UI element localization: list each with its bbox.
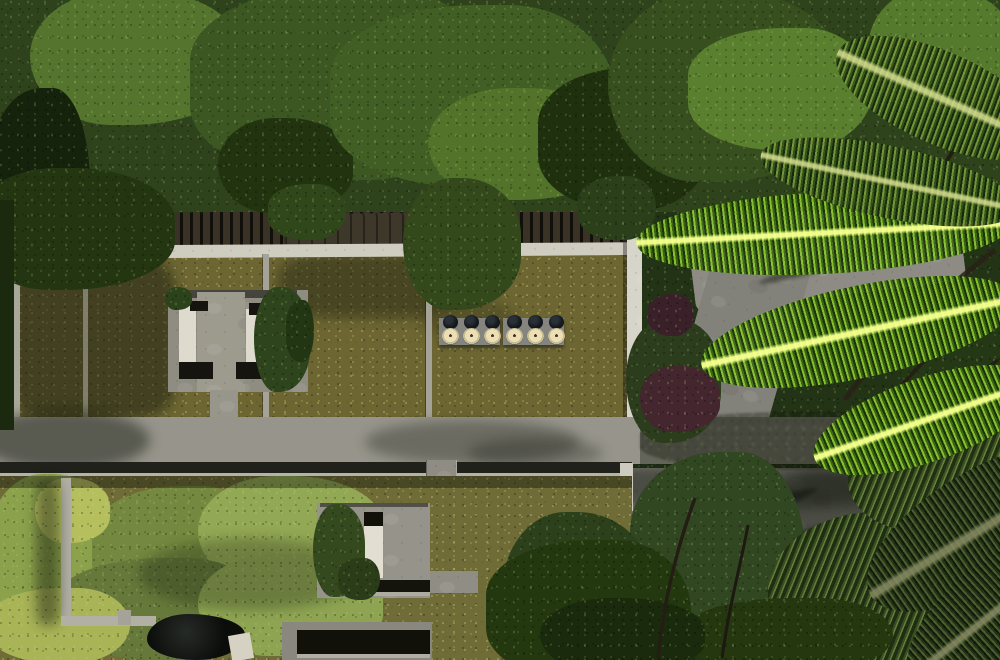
overhanging-branch <box>268 184 346 240</box>
skylight-panel <box>439 318 500 345</box>
skylight-fixture <box>442 319 459 345</box>
skylight-disc-icon <box>506 328 523 345</box>
courtyard-dark-slot <box>190 301 208 311</box>
aerial-photo-scene <box>0 0 1000 660</box>
bottom-lip <box>297 654 430 658</box>
skylight-disc-icon <box>548 328 565 345</box>
walkway-cast-shadow <box>0 476 632 488</box>
courtyard-path-stub <box>210 390 238 420</box>
overhanging-branch <box>0 168 175 290</box>
overhanging-branch <box>403 178 521 310</box>
skylight-dome-icon <box>507 315 522 329</box>
lower-roof-edge-beam <box>61 478 71 625</box>
courtyard-shrub <box>286 300 314 362</box>
courtyard-shrub <box>338 558 380 600</box>
skylight-dome-icon <box>528 315 543 329</box>
courtyard-path-right <box>430 571 478 593</box>
white-wall-corner <box>228 632 254 660</box>
skylight-disc-icon <box>442 328 459 345</box>
courtyard-shrub <box>165 287 192 310</box>
skylight-disc-icon <box>484 328 501 345</box>
skylight-fixture <box>548 319 565 345</box>
concrete-post <box>118 610 131 625</box>
canopy-left-strip <box>0 200 14 430</box>
thin-palm-trunk <box>722 525 748 658</box>
white-planter-left <box>179 306 196 364</box>
bottom-dark-slot <box>297 630 430 655</box>
courtyard-dark-slot <box>364 512 383 526</box>
skylight-dome-icon <box>464 315 479 329</box>
skylight-panel <box>503 318 564 345</box>
skylight-fixture <box>484 319 501 345</box>
lower-roof-edge-beam <box>61 616 156 626</box>
skylight-dome-icon <box>549 315 564 329</box>
beam-side-shadow <box>36 480 60 625</box>
skylight-fixture <box>463 319 480 345</box>
skylight-dome-icon <box>485 315 500 329</box>
courtyard-dark-slot <box>179 362 213 379</box>
skylight-fixture <box>506 319 523 345</box>
skylight-dome-icon <box>443 315 458 329</box>
skylight-fixture <box>527 319 544 345</box>
thin-palm-trunk <box>658 498 695 658</box>
skylight-disc-icon <box>463 328 480 345</box>
skylight-disc-icon <box>527 328 544 345</box>
